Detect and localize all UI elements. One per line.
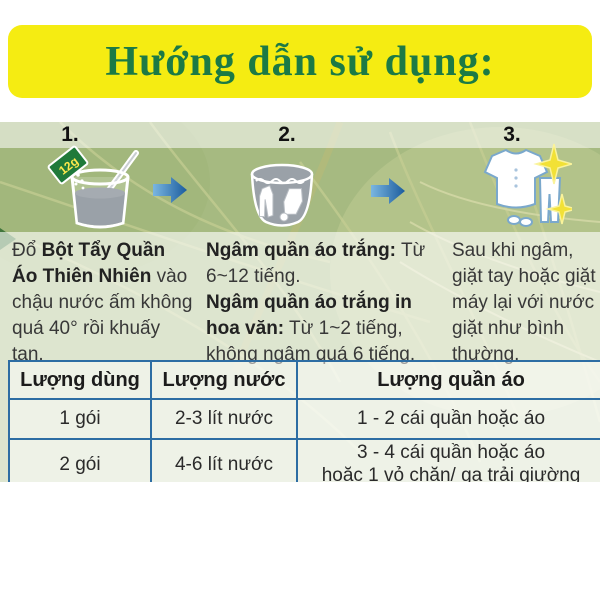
dosage-table: Lượng dùng Lượng nước Lượng quần áo 1 gó…	[8, 360, 600, 482]
arrow-right-icon	[153, 177, 187, 203]
instruction-sheet: Hướng dẫn sử dụng:	[0, 0, 600, 600]
table-row: 2 gói 4-6 lít nước 3 - 4 cái quần hoặc á…	[9, 439, 600, 482]
cell-clothes-1: 1 - 2 cái quần hoặc áo	[297, 399, 600, 439]
step-2-heading-white: Ngâm quần áo trắng:	[206, 240, 396, 261]
cell-water-2: 4-6 lít nước	[151, 439, 297, 482]
packet-pour-bucket-icon: 12g	[38, 143, 162, 231]
cell-dose-1: 1 gói	[9, 399, 151, 439]
soaking-tub-icon	[246, 162, 318, 230]
cell-clothes-2: 3 - 4 cái quần hoặc áo hoặc 1 vỏ chăn/ g…	[297, 439, 600, 482]
table-header-row: Lượng dùng Lượng nước Lượng quần áo	[9, 361, 600, 399]
cell-water-1: 2-3 lít nước	[151, 399, 297, 439]
header-clothes: Lượng quần áo	[297, 361, 600, 399]
step-2-number: 2.	[278, 123, 296, 147]
step-3-description: Sau khi ngâm, giặt tay hoặc giặt máy lại…	[452, 238, 600, 368]
header-dose: Lượng dùng	[9, 361, 151, 399]
step-2-description: Ngâm quần áo trắng: Từ 6~12 tiếng. Ngâm …	[206, 238, 434, 368]
table-row: 1 gói 2-3 lít nước 1 - 2 cái quần hoặc á…	[9, 399, 600, 439]
title-banner: Hướng dẫn sử dụng:	[8, 25, 592, 98]
clean-clothes-sparkles-icon	[462, 142, 572, 232]
header-water: Lượng nước	[151, 361, 297, 399]
cell-dose-2: 2 gói	[9, 439, 151, 482]
step-1-description: Đổ Bột Tẩy Quần Áo Thiên Nhiên vào chậu …	[12, 238, 194, 368]
step-1-text-pre: Đổ	[12, 240, 42, 261]
leaf-background: 1. 2. 3. 12g	[0, 122, 600, 482]
step-3-text: Sau khi ngâm, giặt tay hoặc giặt máy lại…	[452, 240, 596, 365]
arrow-right-icon	[371, 178, 405, 204]
page-title: Hướng dẫn sử dụng:	[105, 38, 494, 86]
